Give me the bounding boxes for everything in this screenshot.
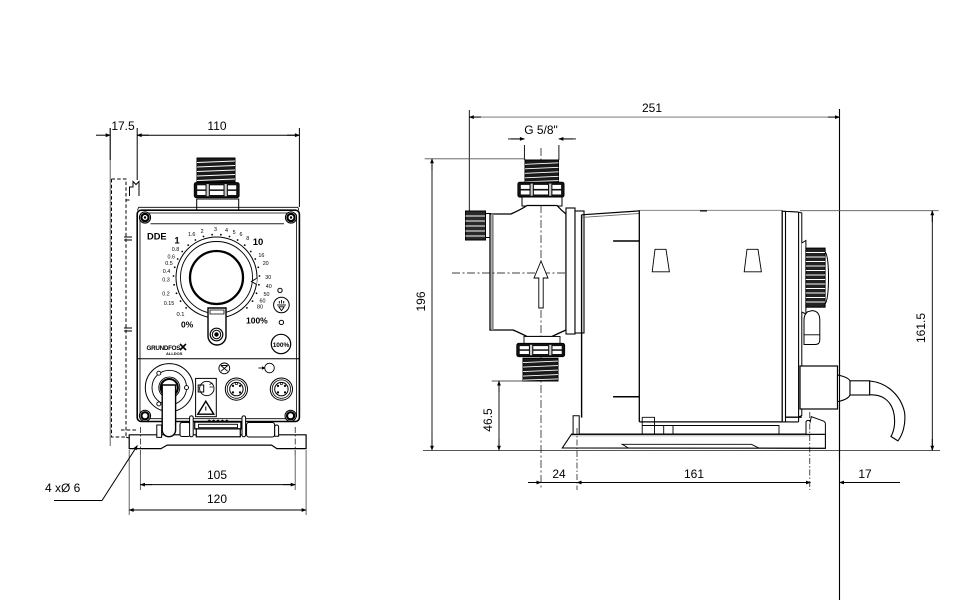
svg-text:100%: 100% — [273, 342, 290, 349]
svg-text:20: 20 — [263, 261, 269, 267]
svg-text:0.8: 0.8 — [172, 247, 180, 253]
svg-text:4: 4 — [225, 228, 228, 234]
svg-text:50: 50 — [264, 292, 270, 298]
svg-text:0.4: 0.4 — [163, 269, 171, 275]
svg-text:100%: 100% — [246, 316, 268, 326]
svg-text:0.6: 0.6 — [168, 254, 176, 260]
svg-text:24: 24 — [552, 467, 566, 481]
svg-text:17.5: 17.5 — [111, 119, 135, 133]
svg-text:4 xØ 6: 4 xØ 6 — [45, 481, 81, 495]
svg-text:2: 2 — [201, 229, 204, 235]
svg-text:80: 80 — [257, 304, 263, 310]
svg-text:40: 40 — [266, 284, 272, 290]
svg-text:10: 10 — [253, 237, 264, 248]
svg-text:0.2: 0.2 — [162, 291, 170, 297]
svg-text:46.5: 46.5 — [481, 408, 495, 432]
svg-text:161: 161 — [684, 467, 704, 481]
svg-text:0.5: 0.5 — [165, 261, 173, 267]
svg-text:0.3: 0.3 — [162, 277, 170, 283]
svg-text:0%: 0% — [181, 320, 194, 330]
svg-text:17: 17 — [858, 467, 872, 481]
svg-text:110: 110 — [207, 119, 226, 133]
svg-text:8: 8 — [246, 236, 249, 242]
svg-text:30: 30 — [265, 275, 271, 281]
svg-text:6: 6 — [240, 232, 243, 238]
svg-text:1.6: 1.6 — [188, 232, 196, 238]
svg-text:251: 251 — [642, 101, 662, 115]
svg-text:120: 120 — [207, 492, 227, 506]
svg-text:5: 5 — [233, 230, 236, 236]
svg-text:16: 16 — [258, 253, 264, 259]
svg-text:G 5/8": G 5/8" — [524, 123, 558, 137]
svg-text:DDE: DDE — [147, 232, 167, 242]
svg-text:0.1: 0.1 — [176, 312, 184, 318]
svg-text:105: 105 — [207, 468, 227, 482]
svg-text:1: 1 — [174, 236, 180, 247]
svg-text:0.15: 0.15 — [164, 301, 175, 307]
svg-text:ALLDOS: ALLDOS — [166, 351, 183, 356]
svg-text:3: 3 — [214, 227, 217, 233]
svg-text:161.5: 161.5 — [914, 313, 928, 343]
svg-text:196: 196 — [414, 291, 428, 311]
